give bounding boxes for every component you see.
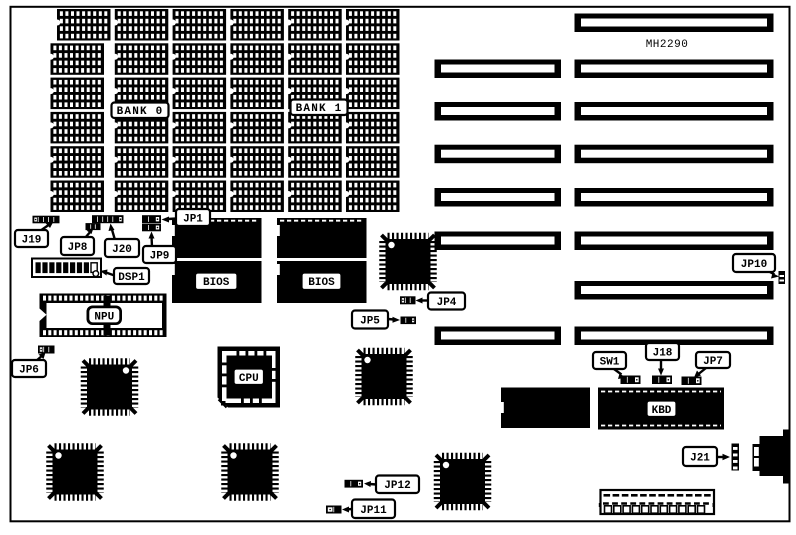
- svg-text:J19: J19: [22, 235, 42, 247]
- svg-text:JP10: JP10: [741, 259, 767, 271]
- svg-text:JP4: JP4: [437, 297, 457, 309]
- svg-text:NPU: NPU: [94, 312, 114, 324]
- svg-text:BANK 1: BANK 1: [296, 103, 343, 115]
- svg-text:MH2290: MH2290: [646, 39, 689, 51]
- svg-text:BIOS: BIOS: [203, 277, 230, 289]
- svg-text:BANK 0: BANK 0: [117, 106, 164, 118]
- svg-text:SW1: SW1: [600, 357, 620, 369]
- svg-text:JP1: JP1: [183, 214, 203, 226]
- svg-text:JP8: JP8: [68, 242, 88, 254]
- svg-text:KBD: KBD: [652, 405, 672, 417]
- svg-text:JP7: JP7: [703, 356, 723, 368]
- svg-text:DSP1: DSP1: [118, 272, 145, 284]
- svg-text:J18: J18: [653, 348, 673, 360]
- svg-text:JP5: JP5: [360, 316, 380, 328]
- svg-text:J20: J20: [112, 244, 132, 256]
- svg-text:JP11: JP11: [360, 505, 387, 517]
- svg-text:JP6: JP6: [19, 365, 39, 377]
- svg-text:JP9: JP9: [150, 251, 170, 263]
- svg-text:BIOS: BIOS: [308, 277, 335, 289]
- svg-text:JP12: JP12: [384, 480, 410, 492]
- svg-text:J21: J21: [690, 453, 710, 465]
- svg-text:CPU: CPU: [239, 373, 259, 385]
